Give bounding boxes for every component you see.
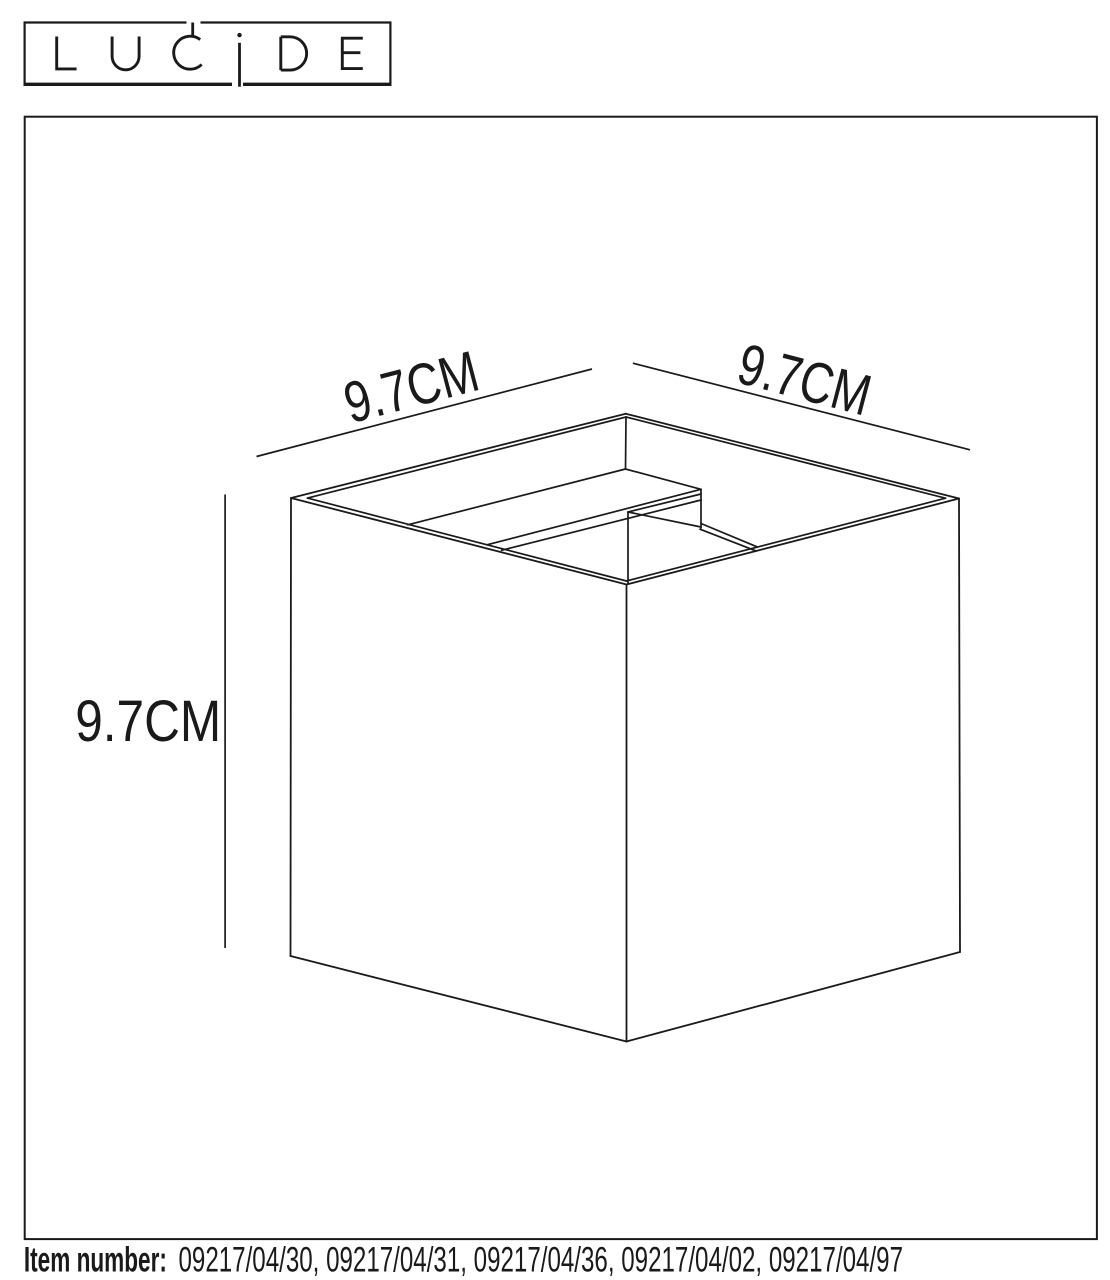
svg-text:Item number:: Item number: [24,1241,167,1280]
svg-text:09217/04/30, 09217/04/31, 0921: 09217/04/30, 09217/04/31, 09217/04/36, 0… [179,1241,904,1280]
svg-text:9.7CM: 9.7CM [75,689,221,754]
